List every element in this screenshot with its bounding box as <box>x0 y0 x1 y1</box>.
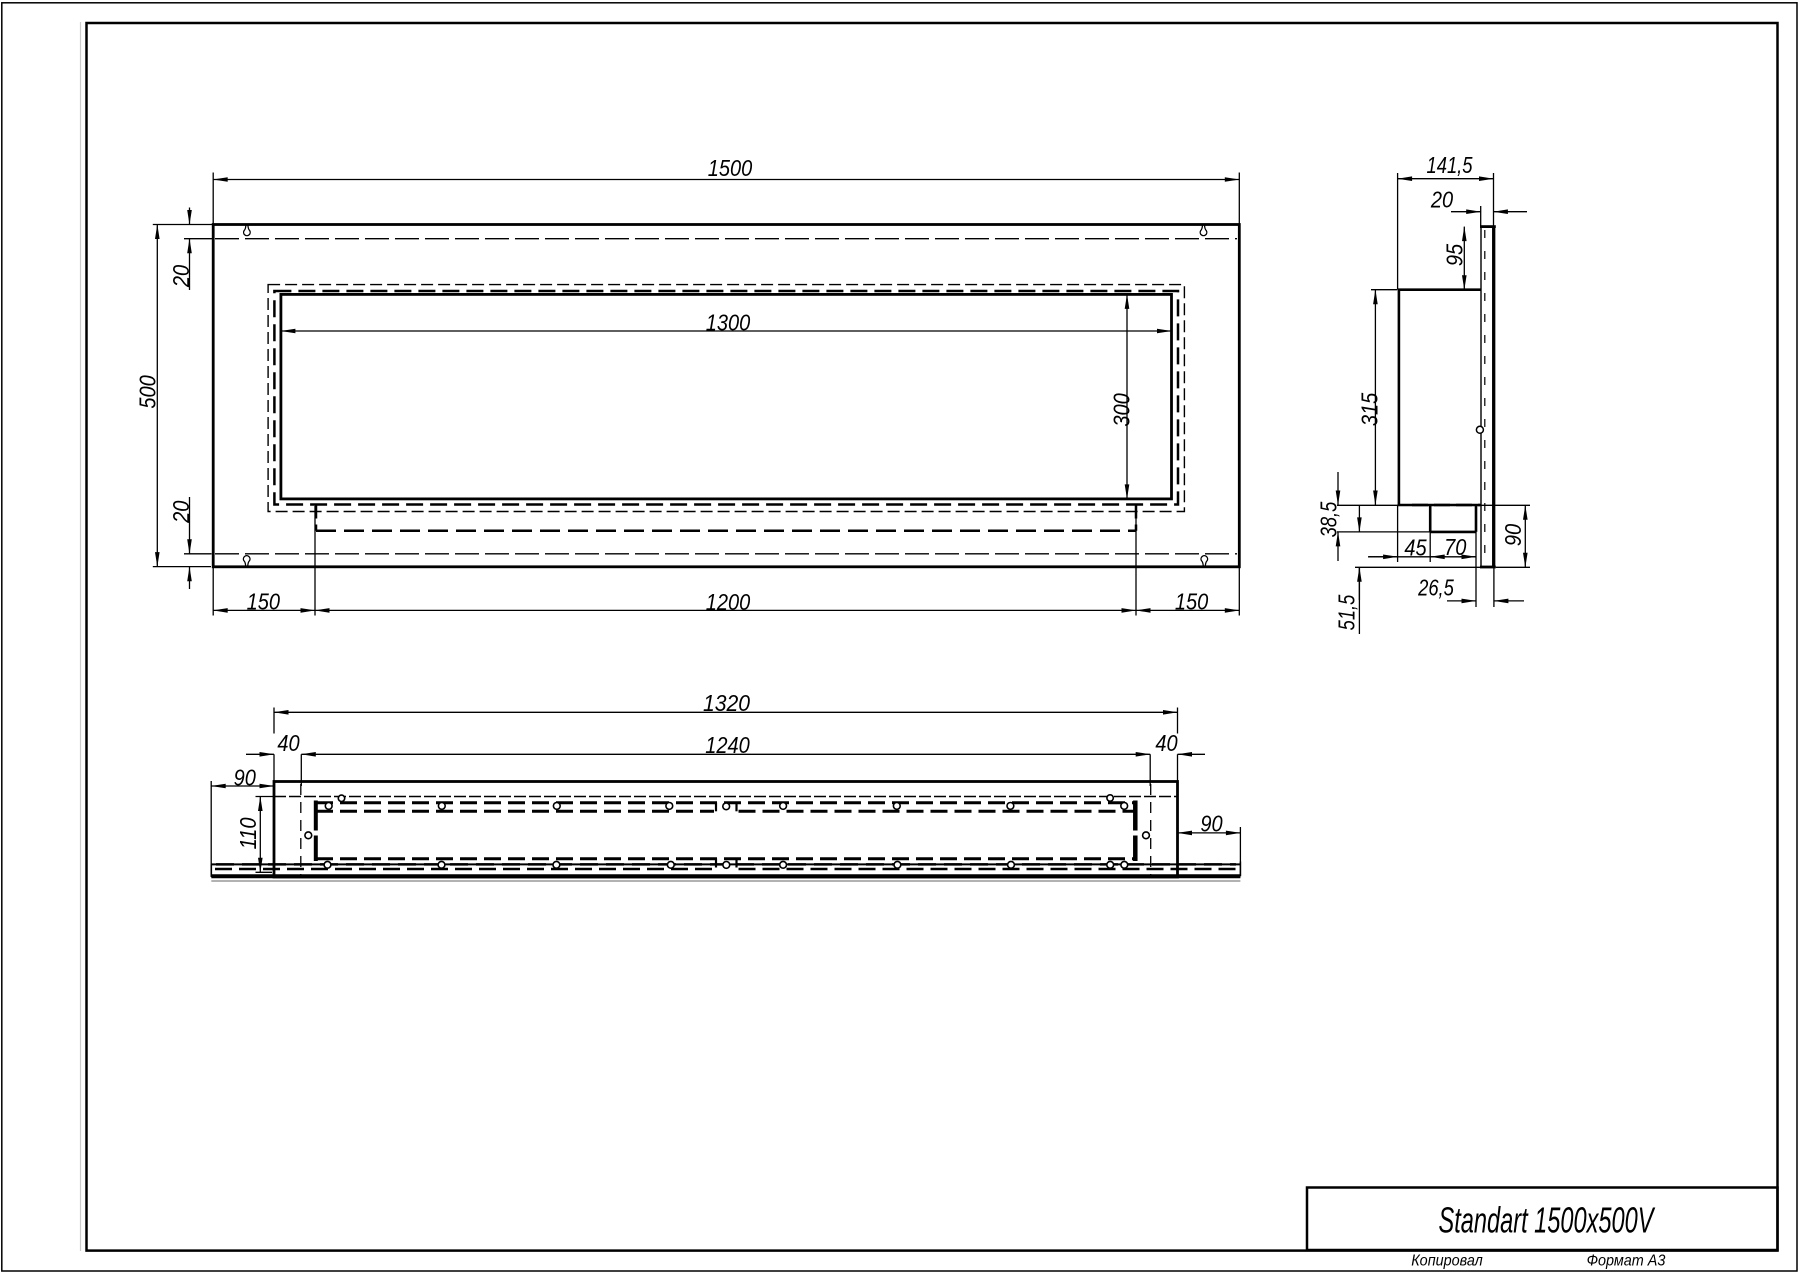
svg-text:90: 90 <box>1200 810 1222 837</box>
svg-text:45: 45 <box>1404 534 1427 561</box>
svg-text:Копировал: Копировал <box>1411 1252 1483 1270</box>
svg-text:20: 20 <box>1430 186 1453 213</box>
svg-text:38,5: 38,5 <box>1316 501 1341 537</box>
svg-text:90: 90 <box>1499 524 1526 546</box>
svg-text:500: 500 <box>134 375 161 408</box>
svg-text:40: 40 <box>277 729 299 756</box>
svg-text:20: 20 <box>167 265 194 288</box>
svg-text:300: 300 <box>1108 393 1135 426</box>
svg-text:40: 40 <box>1155 729 1177 756</box>
svg-text:315: 315 <box>1356 392 1383 426</box>
svg-text:Standart 1500x500V: Standart 1500x500V <box>1439 1201 1656 1241</box>
svg-text:1200: 1200 <box>706 588 751 615</box>
svg-text:20: 20 <box>167 501 194 524</box>
svg-text:1240: 1240 <box>705 731 750 758</box>
svg-text:51,5: 51,5 <box>1334 594 1359 630</box>
svg-text:1300: 1300 <box>706 309 751 336</box>
svg-text:26,5: 26,5 <box>1417 575 1454 600</box>
svg-text:110: 110 <box>235 817 262 849</box>
svg-text:95: 95 <box>1441 243 1468 266</box>
svg-text:1320: 1320 <box>703 690 751 716</box>
svg-text:Формат А3: Формат А3 <box>1587 1252 1666 1270</box>
svg-text:150: 150 <box>247 588 280 615</box>
svg-text:70: 70 <box>1444 533 1466 560</box>
svg-text:150: 150 <box>1175 588 1208 615</box>
svg-text:1500: 1500 <box>708 154 753 181</box>
svg-text:141,5: 141,5 <box>1426 153 1472 178</box>
svg-text:90: 90 <box>234 764 256 791</box>
